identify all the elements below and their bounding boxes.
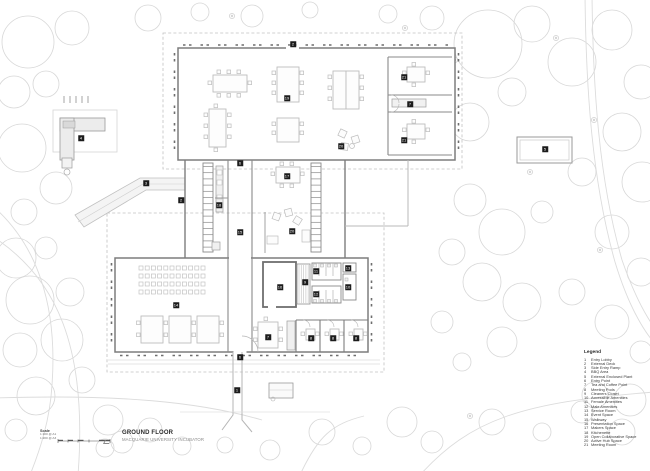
room-marker-6: 6 (237, 354, 243, 360)
room-marker-5: 5 (542, 146, 548, 152)
room-marker-10: 10 (345, 284, 351, 290)
room-marker-19: 19 (284, 95, 290, 101)
room-marker-11: 11 (313, 268, 319, 274)
room-marker-7: 7 (407, 101, 413, 107)
scale-block: Scale 1:100 @ A1 1:200 @ A3 (40, 429, 56, 440)
room-marker-21: 21 (401, 74, 407, 80)
room-marker-13: 13 (345, 265, 351, 271)
scale-ratio-2: 1:200 @ A3 (40, 437, 56, 441)
room-marker-1: 1 (234, 387, 240, 393)
room-marker-20: 20 (338, 143, 344, 149)
room-marker-8: 8 (308, 335, 314, 341)
room-marker-17: 17 (284, 173, 290, 179)
legend-item-label: Meeting Room (591, 443, 648, 447)
room-marker-2: 2 (178, 197, 184, 203)
floor-plan-drawing (0, 0, 650, 471)
room-marker-12: 12 (313, 291, 319, 297)
room-marker-3: 3 (143, 180, 149, 186)
room-marker-4: 4 (78, 135, 84, 141)
room-marker-2: 2 (290, 41, 296, 47)
room-marker-8: 8 (353, 335, 359, 341)
title-block: GROUND FLOOR MACQUARIE UNIVERSITY INCUBA… (122, 430, 204, 442)
legend-heading: Legend (584, 350, 648, 355)
legend-item-number: 21 (584, 443, 591, 447)
room-marker-7: 7 (265, 334, 271, 340)
room-marker-16: 16 (277, 284, 283, 290)
room-marker-20: 20 (289, 228, 295, 234)
legend-items: 1Entry Lobby2External Deck3Side Entry Ra… (584, 358, 648, 448)
lower-building (108, 256, 380, 364)
room-marker-14: 14 (173, 302, 179, 308)
room-marker-21: 21 (401, 137, 407, 143)
page-title: GROUND FLOOR (122, 430, 204, 436)
room-marker-6: 6 (237, 160, 243, 166)
page-subtitle: MACQUARIE UNIVERSITY INCUBATOR (122, 437, 204, 442)
room-marker-18: 18 (216, 202, 222, 208)
room-marker-9: 9 (302, 279, 308, 285)
room-marker-8: 8 (330, 335, 336, 341)
side-entry-ramp (75, 178, 185, 227)
legend: Legend 1Entry Lobby2External Deck3Side E… (584, 350, 648, 448)
drawing-sheet: 1223456677888910111213141516171819202021… (0, 0, 650, 471)
legend-item: 21Meeting Room (584, 443, 648, 447)
bbq-area-structure (53, 96, 117, 175)
room-marker-15: 15 (237, 229, 243, 235)
